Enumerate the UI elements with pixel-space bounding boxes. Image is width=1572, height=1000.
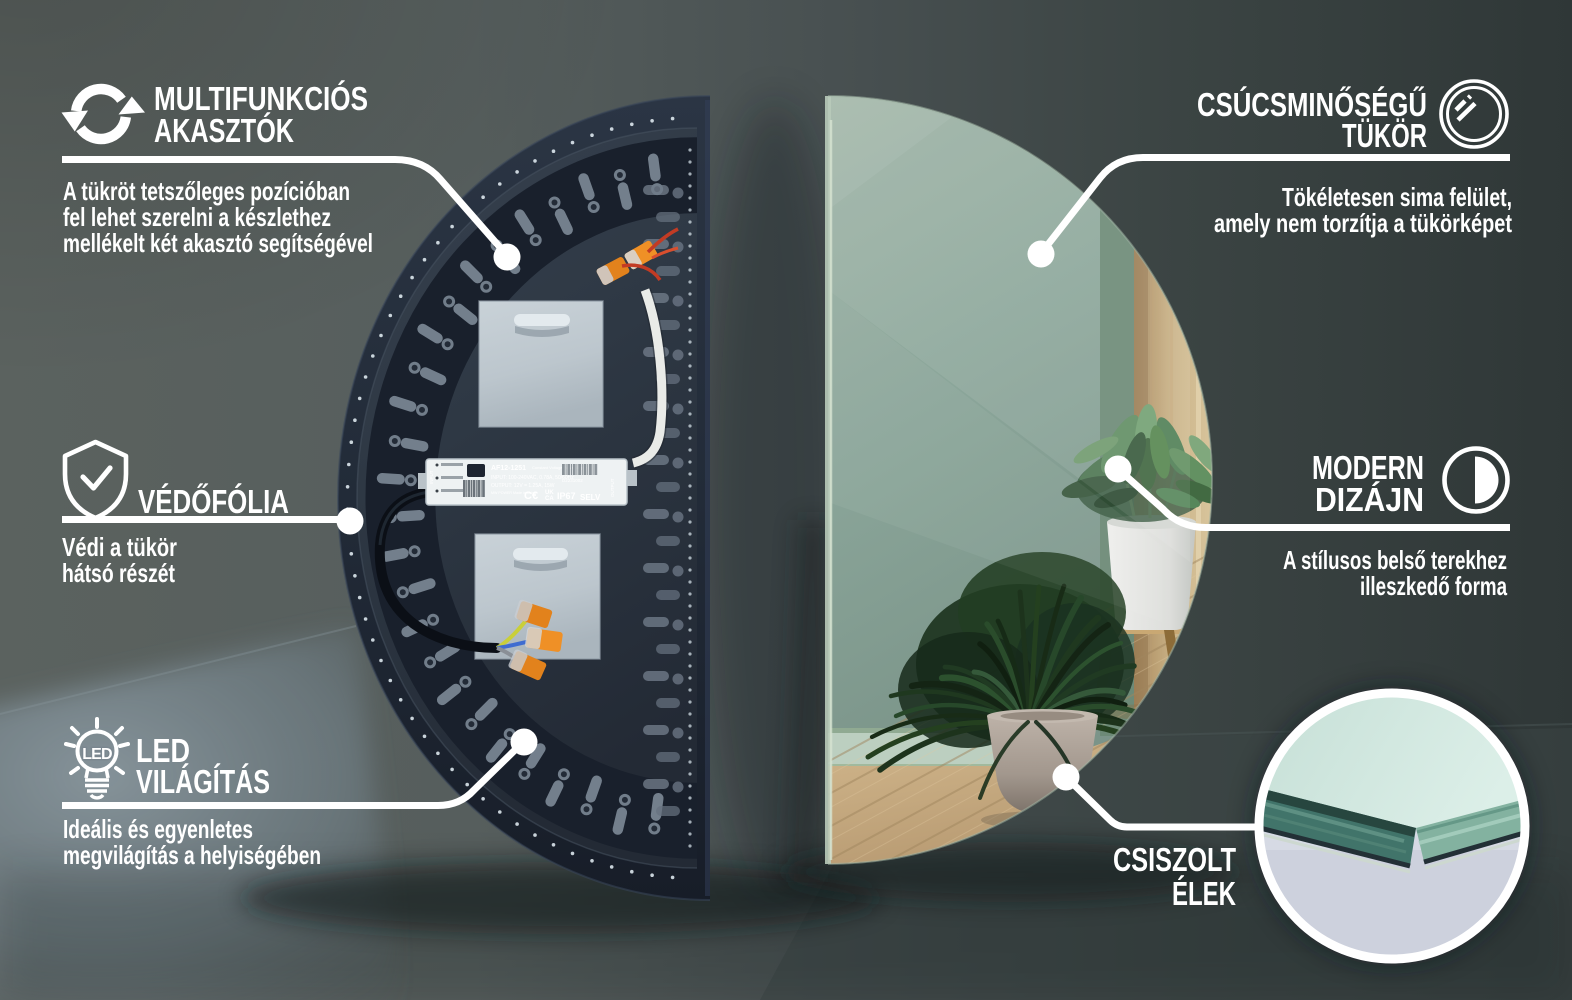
svg-text:C€: C€ — [524, 490, 538, 502]
svg-text:OUTPUT: 12V = 1.25A, 15W: OUTPUT: 12V = 1.25A, 15W — [491, 483, 555, 489]
svg-text:AKASZTÓK: AKASZTÓK — [154, 112, 294, 149]
svg-text:mellékelt két akasztó segítség: mellékelt két akasztó segítségével — [63, 228, 373, 258]
svg-text:INPUT: INPUT — [429, 470, 434, 484]
svg-text:VILÁGÍTÁS: VILÁGÍTÁS — [136, 763, 270, 800]
svg-text:megvilágítás a helyiségében: megvilágítás a helyiségében — [63, 840, 321, 870]
svg-text:TÜKÖR: TÜKÖR — [1342, 117, 1427, 154]
svg-text:CSISZOLT: CSISZOLT — [1113, 841, 1236, 878]
svg-text:SELV: SELV — [580, 493, 601, 502]
svg-text:illeszkedő forma: illeszkedő forma — [1360, 571, 1507, 601]
svg-text:DIZÁJN: DIZÁJN — [1315, 481, 1424, 518]
svg-text:AF12-1251: AF12-1251 — [491, 465, 526, 472]
svg-text:D2231002: D2231002 — [562, 478, 583, 483]
svg-text:VÉDŐFÓLIA: VÉDŐFÓLIA — [138, 483, 289, 520]
svg-text:OUTPUT: OUTPUT — [610, 478, 615, 497]
svg-text:hátsó részét: hátsó részét — [62, 558, 175, 588]
svg-text:amely nem torzítja a tükörképe: amely nem torzítja a tükörképet — [1214, 208, 1512, 238]
svg-text:LED: LED — [82, 746, 112, 763]
svg-text:IP67: IP67 — [557, 491, 576, 501]
svg-text:CA: CA — [545, 496, 554, 502]
svg-text:ÉLEK: ÉLEK — [1172, 875, 1236, 912]
